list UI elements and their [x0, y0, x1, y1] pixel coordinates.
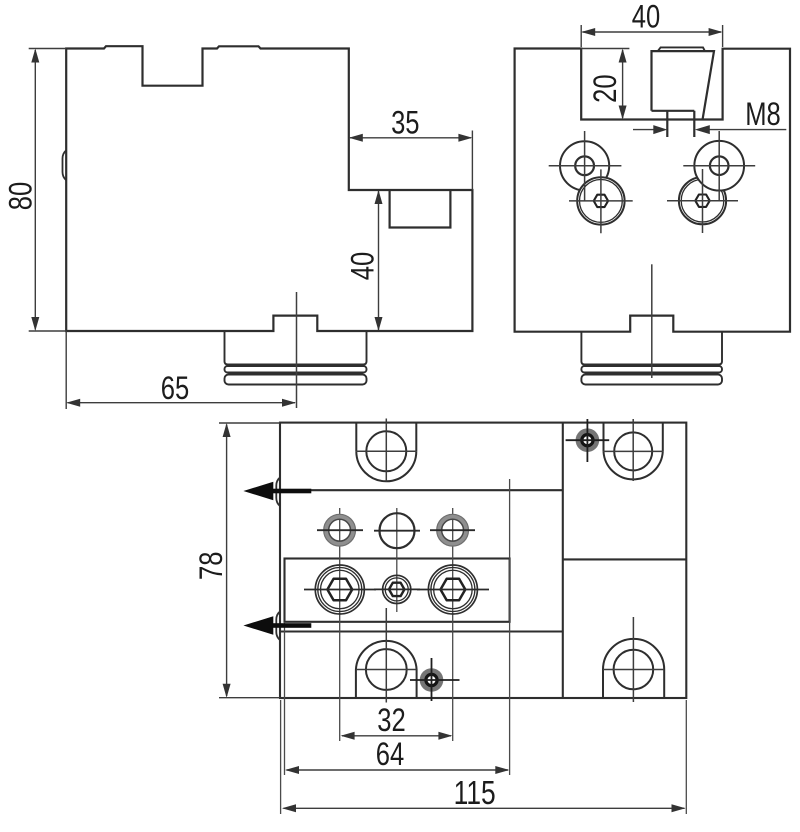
svg-text:64: 64: [376, 737, 404, 772]
svg-text:32: 32: [377, 703, 405, 738]
svg-text:80: 80: [4, 182, 39, 210]
svg-text:65: 65: [161, 371, 189, 406]
svg-text:35: 35: [391, 106, 419, 141]
svg-text:M8: M8: [745, 98, 781, 133]
svg-text:78: 78: [194, 552, 229, 580]
svg-text:115: 115: [454, 775, 496, 811]
svg-text:20: 20: [588, 74, 623, 102]
svg-text:40: 40: [346, 252, 381, 280]
svg-text:40: 40: [632, 0, 660, 35]
